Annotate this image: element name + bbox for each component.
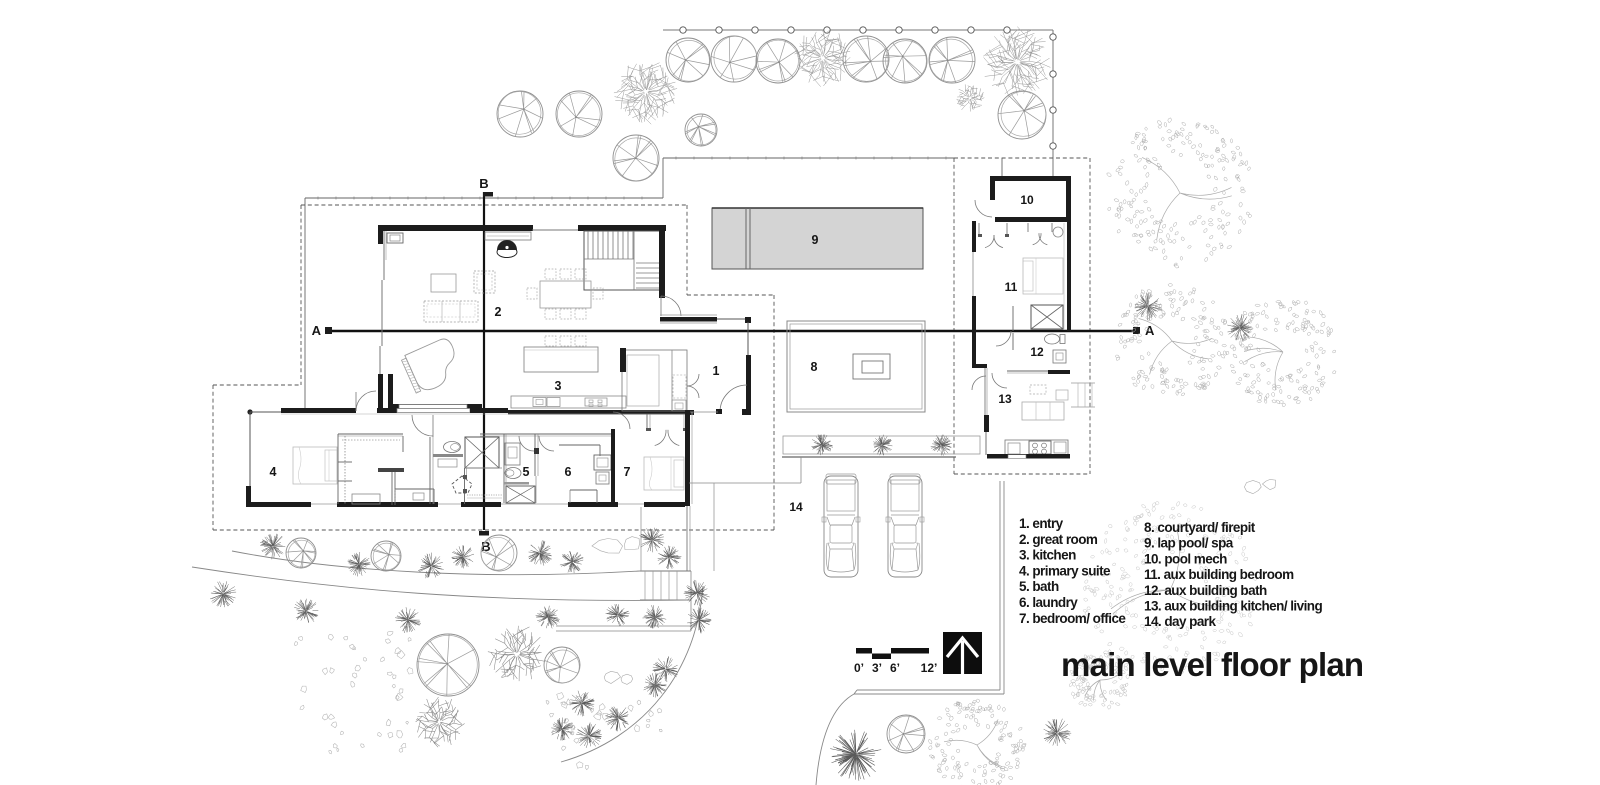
- svg-text:6. laundry: 6. laundry: [1019, 595, 1078, 610]
- svg-text:0’: 0’: [854, 661, 864, 675]
- svg-text:11. aux building bedroom: 11. aux building bedroom: [1144, 567, 1294, 582]
- svg-text:4. primary suite: 4. primary suite: [1019, 563, 1111, 578]
- svg-text:5. bath: 5. bath: [1019, 579, 1059, 594]
- svg-text:10: 10: [1020, 193, 1034, 207]
- svg-text:12. aux building bath: 12. aux building bath: [1144, 583, 1267, 598]
- svg-text:10. pool mech: 10. pool mech: [1144, 551, 1227, 566]
- svg-text:7: 7: [624, 465, 631, 479]
- svg-text:12: 12: [1030, 345, 1044, 359]
- svg-text:9. lap pool/ spa: 9. lap pool/ spa: [1144, 536, 1234, 551]
- svg-text:1: 1: [713, 364, 720, 378]
- svg-text:7. bedroom/ office: 7. bedroom/ office: [1019, 611, 1126, 626]
- svg-text:2. great room: 2. great room: [1019, 532, 1098, 547]
- svg-text:4: 4: [270, 465, 277, 479]
- svg-text:12’: 12’: [921, 661, 938, 675]
- svg-text:14: 14: [789, 500, 803, 514]
- svg-text:13. aux building kitchen/ livi: 13. aux building kitchen/ living: [1144, 599, 1322, 614]
- svg-text:13: 13: [998, 392, 1012, 406]
- svg-text:8: 8: [811, 360, 818, 374]
- svg-text:1. entry: 1. entry: [1019, 516, 1064, 531]
- svg-text:2: 2: [495, 305, 502, 319]
- svg-text:3. kitchen: 3. kitchen: [1019, 548, 1076, 563]
- svg-text:main level floor plan: main level floor plan: [1061, 646, 1363, 683]
- svg-text:6: 6: [565, 465, 572, 479]
- svg-text:14. day park: 14. day park: [1144, 614, 1216, 629]
- svg-text:9: 9: [812, 233, 819, 247]
- svg-text:B: B: [479, 176, 488, 191]
- svg-text:3’: 3’: [872, 661, 882, 675]
- svg-text:3: 3: [555, 379, 562, 393]
- svg-text:8. courtyard/ firepit: 8. courtyard/ firepit: [1144, 520, 1256, 535]
- svg-text:A: A: [312, 323, 322, 338]
- svg-text:6’: 6’: [890, 661, 900, 675]
- svg-text:11: 11: [1005, 280, 1018, 294]
- svg-text:5: 5: [523, 465, 530, 479]
